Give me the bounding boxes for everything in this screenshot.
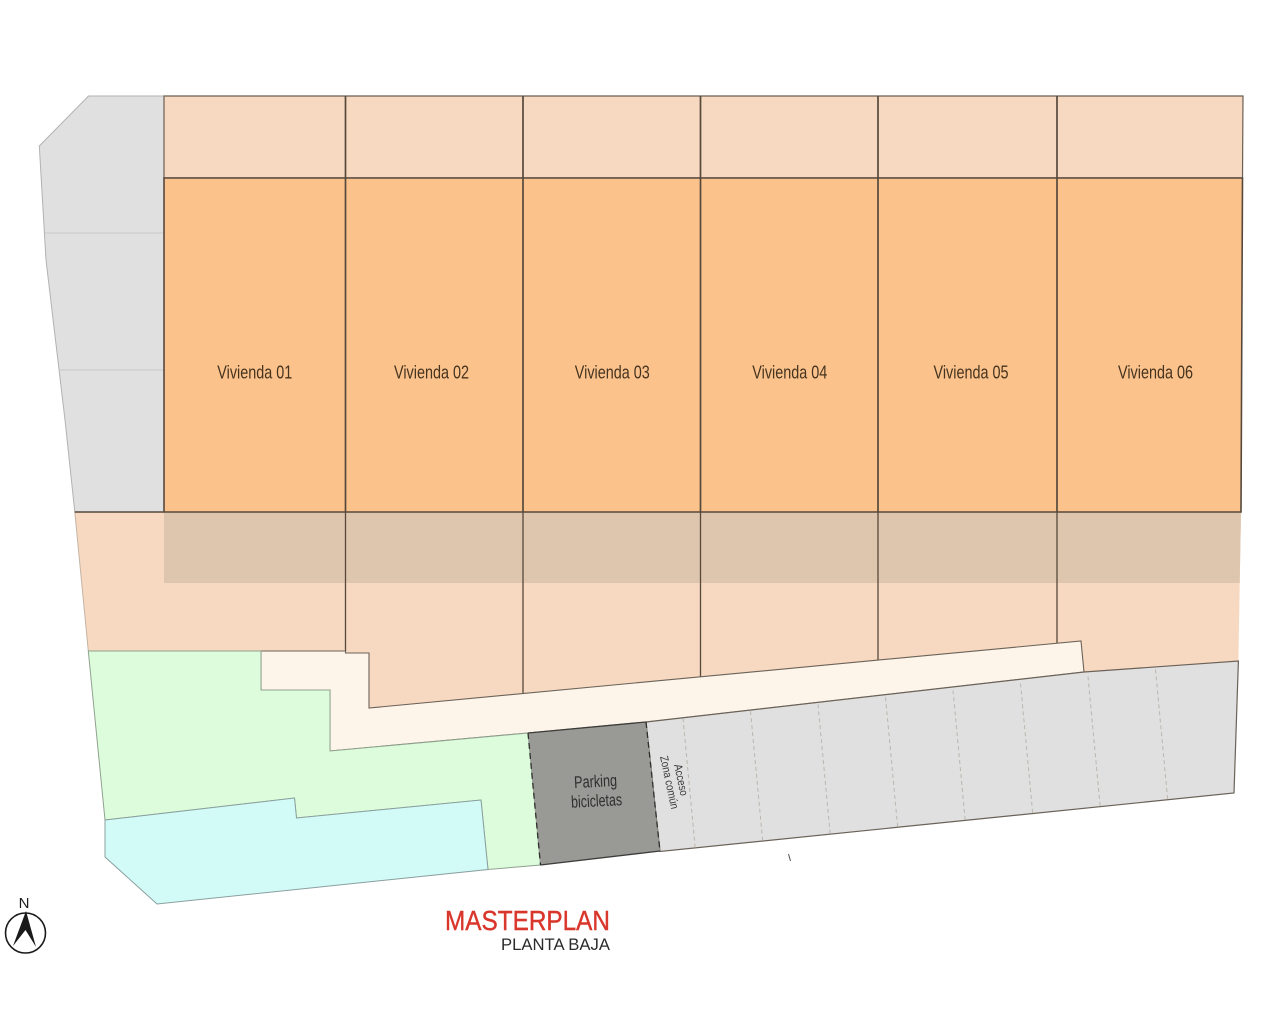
svg-text:bicicletas: bicicletas xyxy=(571,790,623,812)
svg-text:N: N xyxy=(19,895,30,912)
svg-text:Vivienda 05: Vivienda 05 xyxy=(934,362,1009,383)
svg-text:Vivienda 02: Vivienda 02 xyxy=(394,362,469,383)
svg-text:Vivienda 06: Vivienda 06 xyxy=(1118,362,1193,383)
svg-text:Vivienda 04: Vivienda 04 xyxy=(752,362,827,383)
svg-text:Vivienda 01: Vivienda 01 xyxy=(217,362,292,383)
svg-text:MASTERPLAN: MASTERPLAN xyxy=(445,905,610,936)
svg-text:Vivienda 03: Vivienda 03 xyxy=(575,362,650,383)
svg-text:Parking: Parking xyxy=(574,771,618,792)
svg-text:PLANTA BAJA: PLANTA BAJA xyxy=(501,935,611,954)
